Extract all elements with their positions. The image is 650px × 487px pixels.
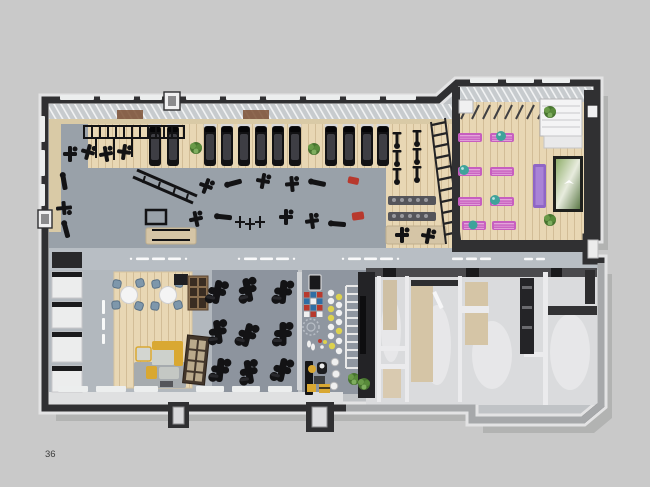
- marker-dot: [323, 340, 327, 344]
- north-windows: [60, 95, 416, 100]
- plant: [544, 214, 556, 226]
- gym-north-wall-face: [49, 119, 455, 124]
- wall-cabinet-dark: [52, 252, 82, 268]
- cardio-functional-divider-wall: [297, 272, 302, 390]
- locker-north-wall: [366, 268, 597, 277]
- door-lintel: [411, 280, 458, 286]
- plant: [358, 378, 370, 390]
- roof-vent: [117, 110, 143, 119]
- partition-wall: [405, 276, 409, 402]
- partition-shelf: [381, 364, 405, 369]
- ottoman: [159, 367, 179, 379]
- ac-unit: [459, 100, 473, 113]
- sofa-set: [134, 341, 186, 388]
- red-bench: [352, 211, 365, 221]
- partition-wall: [543, 272, 548, 405]
- entrance-vestibule-west: [168, 402, 189, 428]
- yoga-north-windows: [470, 78, 570, 83]
- partition-shelf: [461, 306, 489, 313]
- locker-niche: [520, 278, 534, 354]
- plant: [308, 143, 320, 155]
- bookshelf-upper: [188, 276, 208, 310]
- bar-stool: [331, 358, 339, 366]
- bench-band: [548, 306, 597, 315]
- door-opening: [551, 268, 562, 277]
- bookshelf-lower: [183, 335, 210, 385]
- page-number: 36: [45, 449, 56, 460]
- wall-art: [553, 156, 583, 212]
- wall-locker-units: [52, 272, 82, 392]
- partition-wall: [458, 276, 462, 402]
- cardio-machine-grid: [204, 276, 295, 386]
- display-panel: [360, 296, 366, 354]
- instructor-mat: [533, 164, 546, 208]
- tv-cabinet: [174, 274, 188, 285]
- wall-monitor: [309, 275, 321, 290]
- east-jog-window: [588, 240, 598, 258]
- door-opening: [466, 268, 479, 277]
- tiled-wall: [383, 280, 397, 330]
- partition-wall: [377, 276, 381, 402]
- wall-niche: [585, 270, 595, 304]
- partition-shelf: [381, 346, 405, 351]
- roof-vent: [243, 110, 269, 119]
- floor-graphic-vertical: [102, 300, 105, 344]
- armchair: [136, 347, 151, 361]
- south-wall-inner-face: [49, 392, 343, 404]
- coffee-table: [160, 381, 173, 387]
- tiled-wall: [411, 282, 433, 382]
- training-pin: [307, 341, 311, 348]
- tiled-wall: [465, 282, 488, 345]
- chaise: [146, 366, 157, 379]
- entrance-vestibule-south: [306, 402, 334, 432]
- tiled-floor: [383, 368, 401, 398]
- gym-floorplan-render: 36: [0, 0, 650, 487]
- plant: [544, 106, 556, 118]
- bar-stool: [330, 382, 338, 390]
- door-opening: [383, 268, 396, 277]
- window-bay: [540, 99, 582, 148]
- marker-dot: [318, 339, 322, 343]
- training-pin: [311, 344, 315, 351]
- yoga-south-wall: [452, 240, 597, 252]
- plant: [190, 142, 202, 154]
- catalog-page: 36: [0, 0, 650, 487]
- juice-bar: [305, 358, 340, 395]
- marker-dot: [320, 345, 324, 349]
- west-windows: [40, 116, 45, 206]
- bar-stool: [332, 370, 340, 378]
